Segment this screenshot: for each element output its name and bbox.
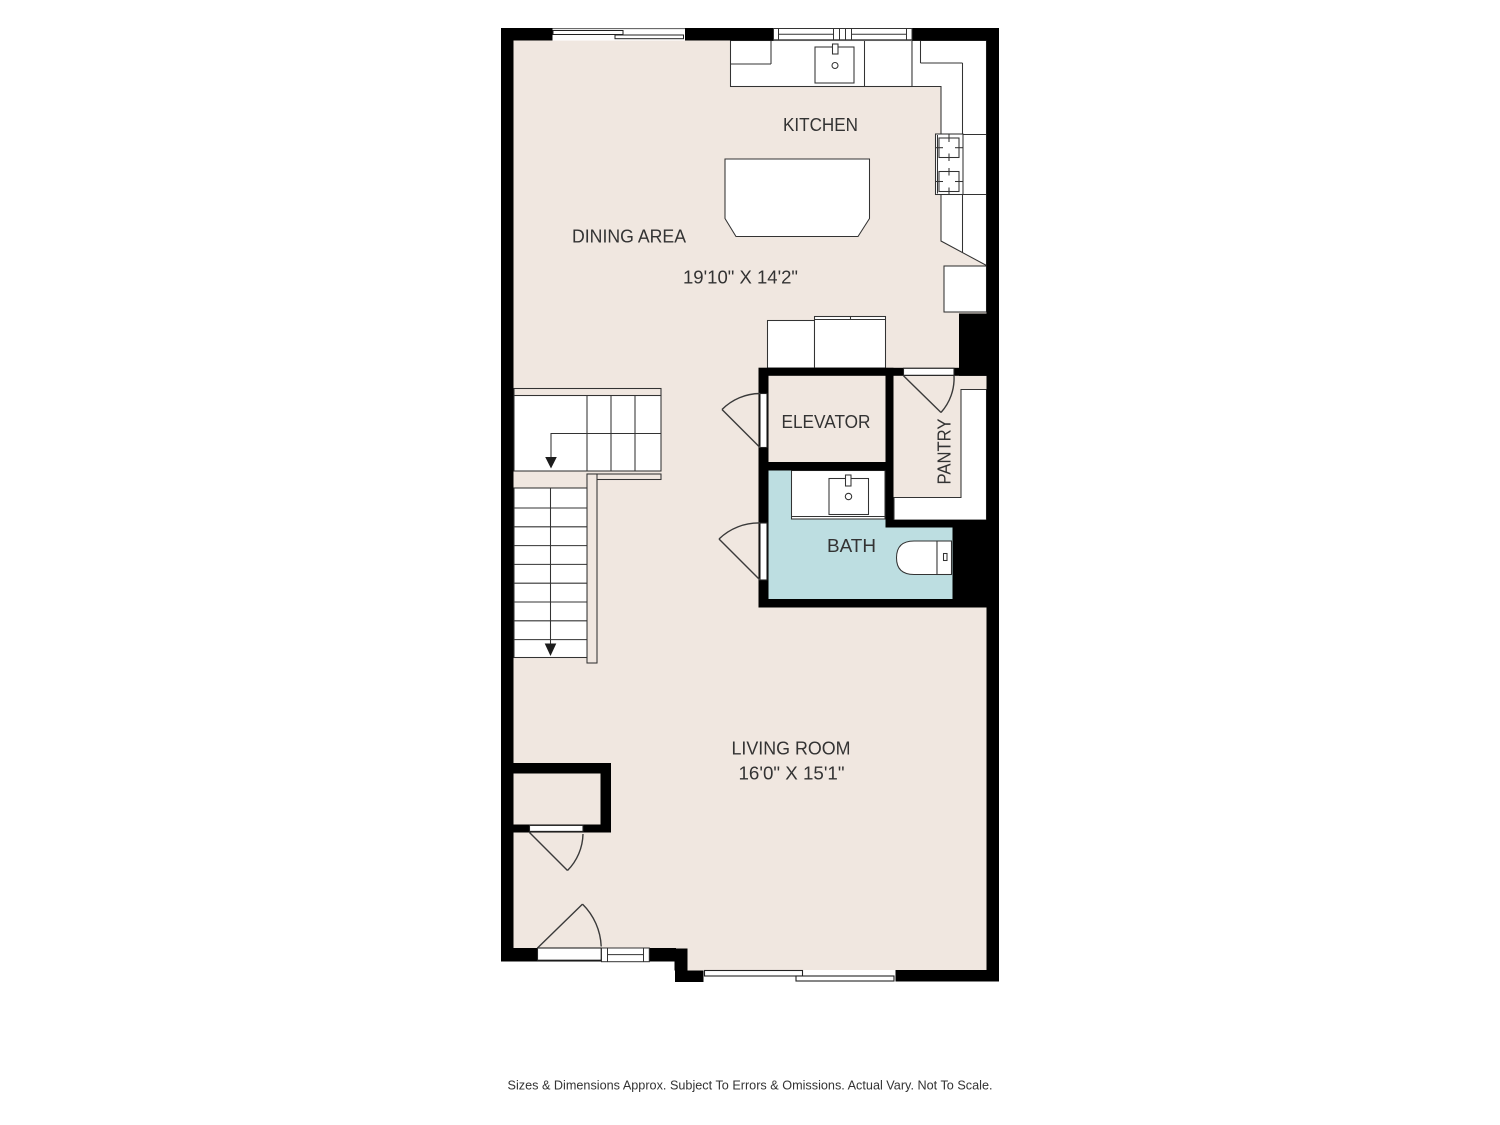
svg-text:19'10" X 14'2": 19'10" X 14'2"	[683, 267, 798, 288]
svg-text:BATH: BATH	[827, 535, 876, 556]
svg-text:KITCHEN: KITCHEN	[783, 114, 858, 135]
svg-text:PANTRY: PANTRY	[934, 419, 955, 485]
svg-text:DINING AREA: DINING AREA	[572, 227, 686, 247]
svg-text:16'0" X 15'1": 16'0" X 15'1"	[739, 763, 845, 784]
svg-text:ELEVATOR: ELEVATOR	[782, 411, 871, 432]
svg-text:Sizes & Dimensions Approx. Sub: Sizes & Dimensions Approx. Subject To Er…	[508, 1079, 993, 1093]
svg-text:LIVING ROOM: LIVING ROOM	[732, 738, 851, 759]
